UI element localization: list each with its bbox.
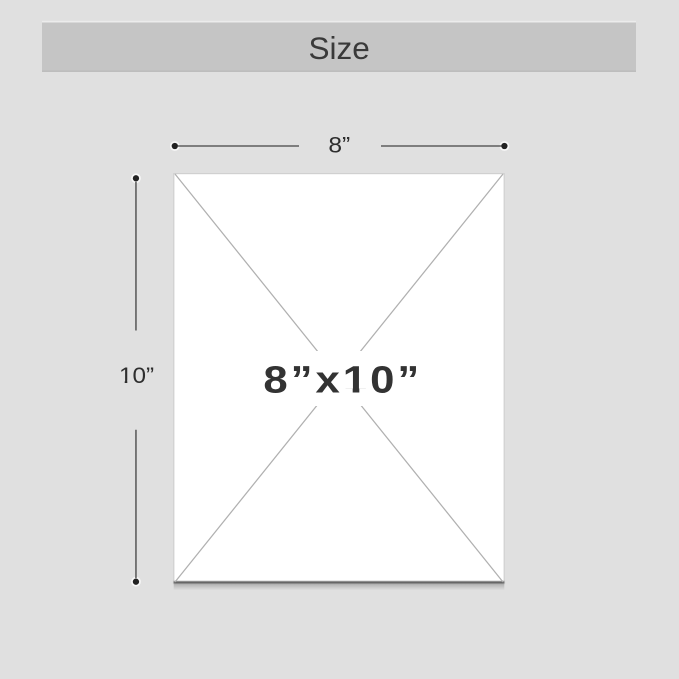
- svg-text:8”x10”: 8”x10”: [263, 358, 422, 401]
- svg-text:Size: Size: [309, 30, 370, 66]
- svg-text:8”: 8”: [328, 133, 350, 157]
- svg-text:10”: 10”: [119, 363, 154, 388]
